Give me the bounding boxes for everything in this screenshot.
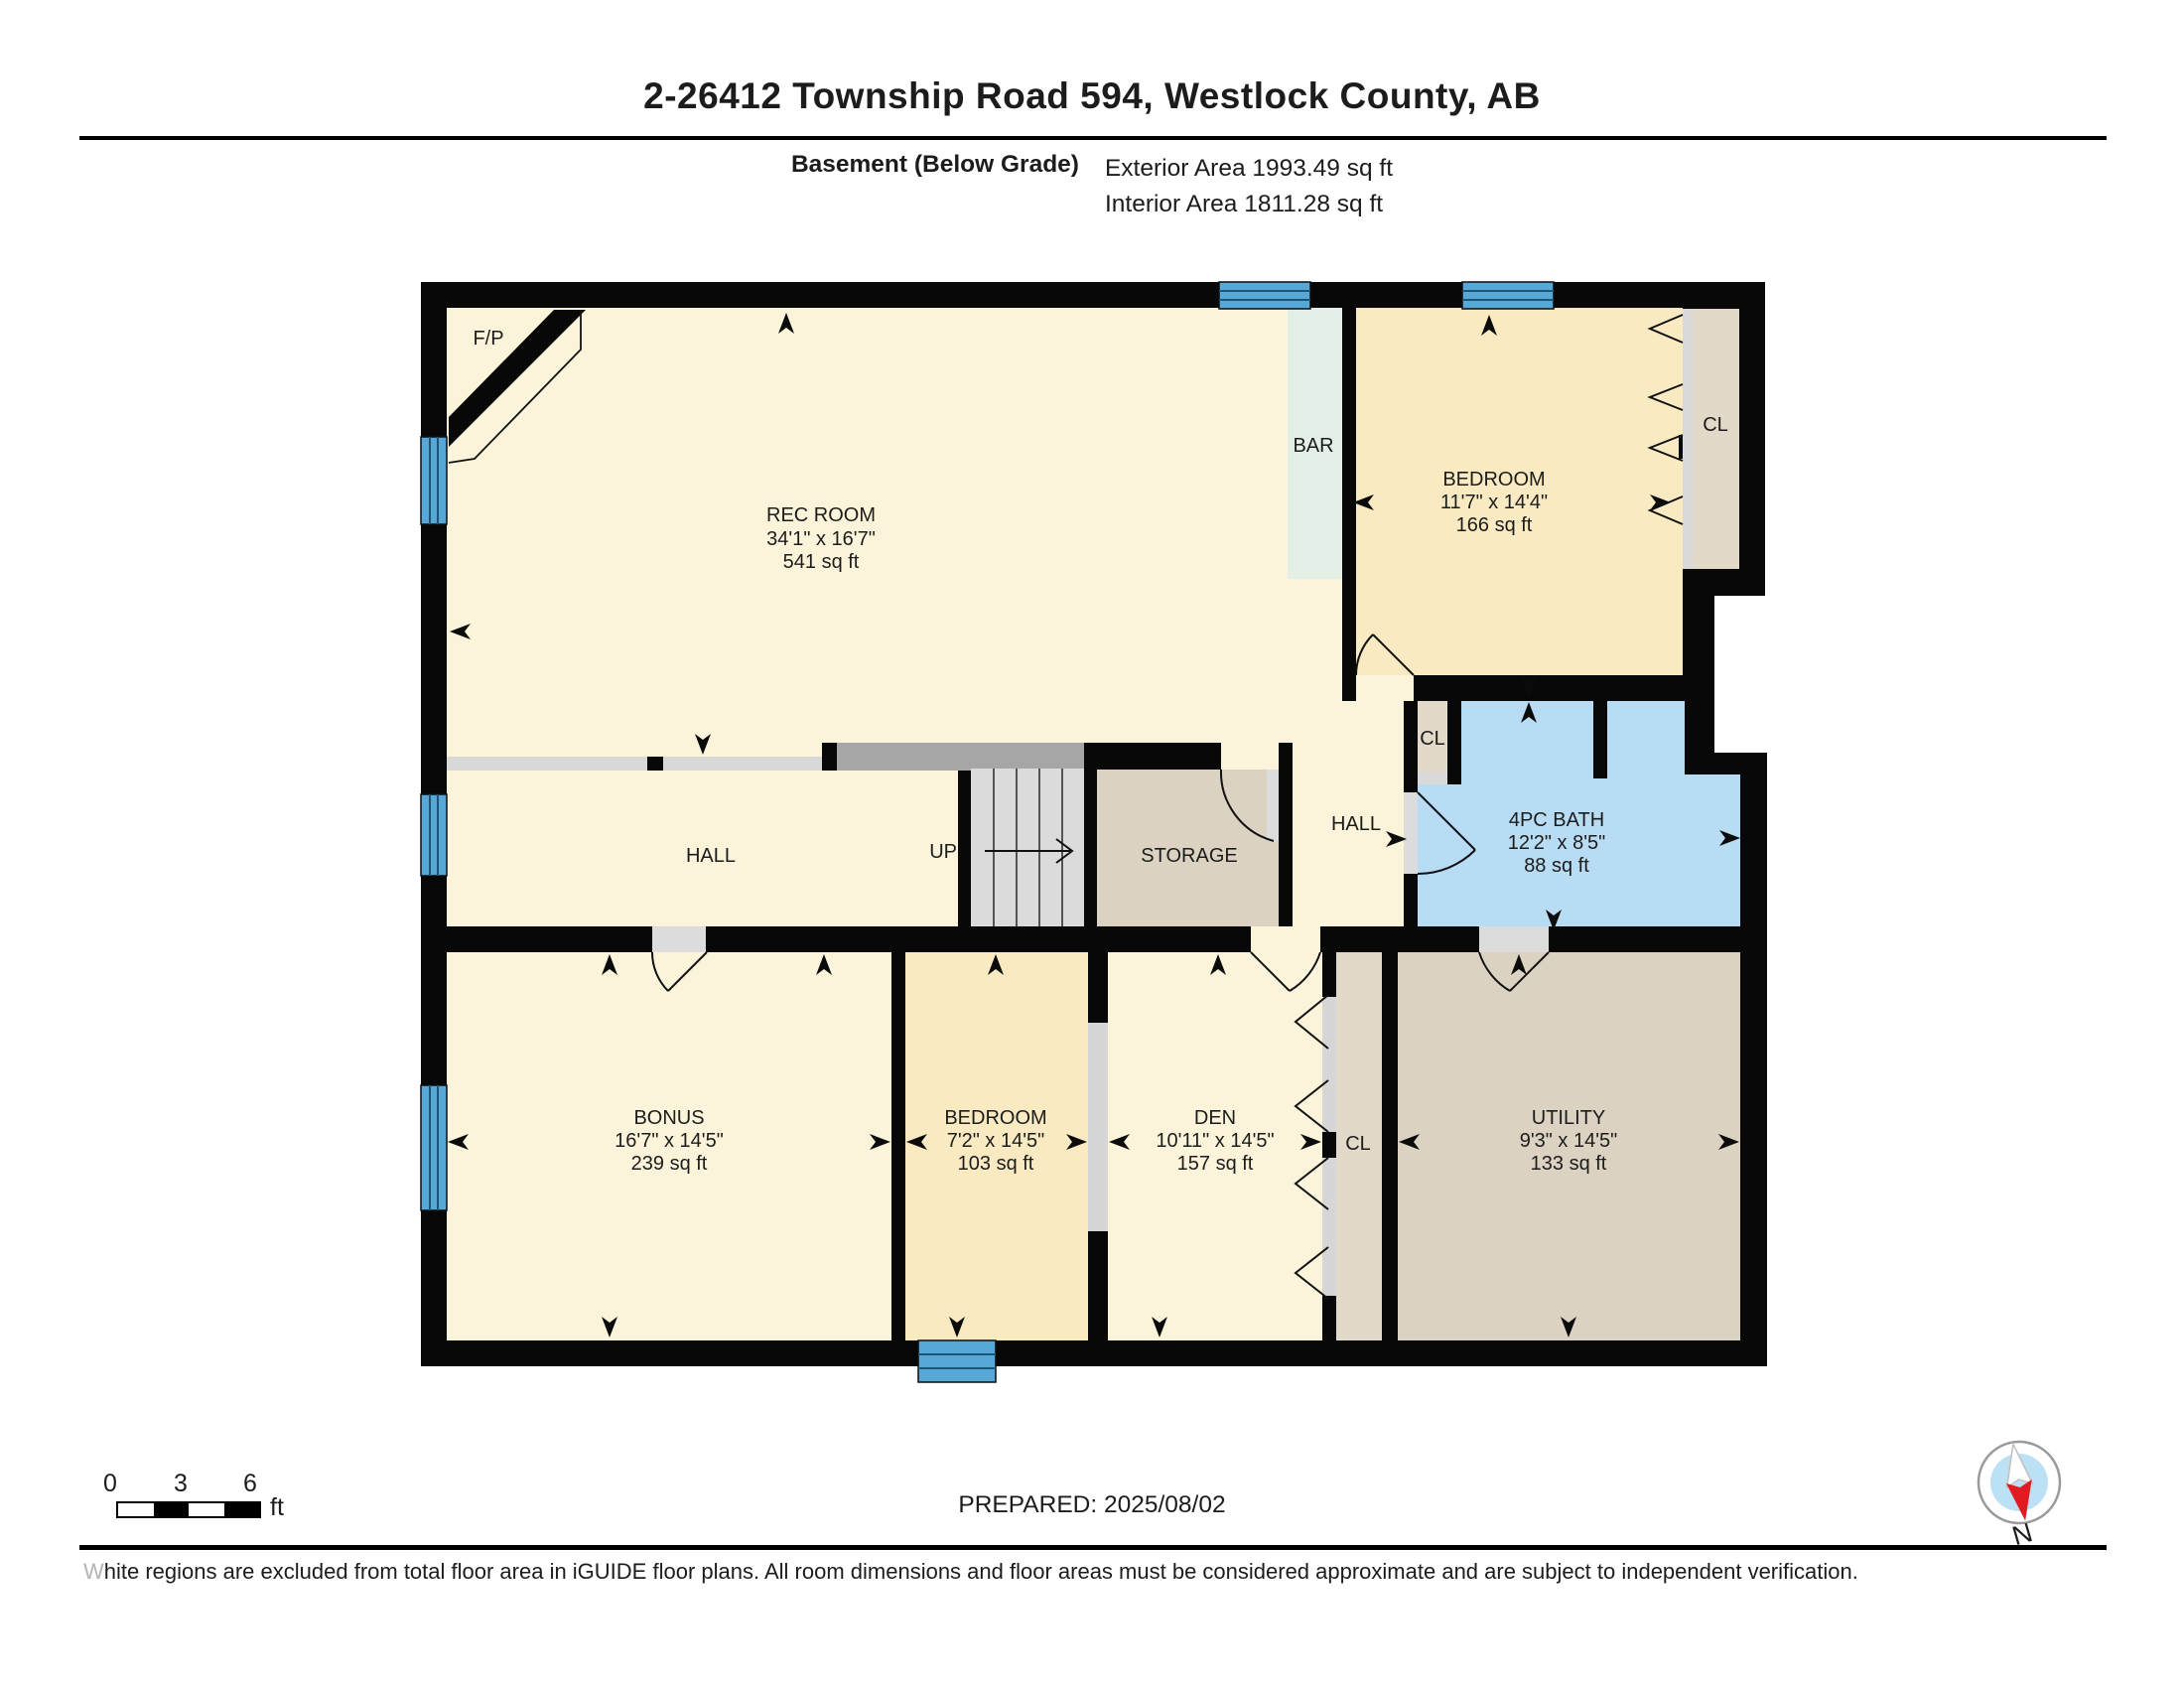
floor-label: Basement (Below Grade) [791, 151, 1079, 179]
up-label: UP [929, 841, 957, 863]
room-label: BEDROOM [944, 1107, 1046, 1129]
window-icon [1219, 282, 1310, 309]
floor-plan: F/P REC ROOM 34'1" x 16'7" 541 sq ft BAR… [417, 278, 1787, 1390]
room-label: REC ROOM [766, 504, 876, 526]
prepared-date: PREPARED: 2025/08/02 [0, 1491, 2184, 1519]
closet-label: CL [1703, 414, 1728, 436]
window-icon [421, 1085, 447, 1210]
fireplace-label: F/P [473, 328, 503, 350]
compass-icon: N [1974, 1438, 2067, 1553]
closet-label: CL [1420, 728, 1445, 750]
closet-track-hall [1418, 772, 1447, 784]
svg-text:133 sq ft: 133 sq ft [1531, 1153, 1607, 1175]
window-icon [918, 1340, 996, 1382]
room-label: BEDROOM [1442, 469, 1545, 491]
hall2-label: HALL [1331, 813, 1381, 835]
page-title: 2-26412 Township Road 594, Westlock Coun… [0, 75, 2184, 117]
svg-text:12'2" x 8'5": 12'2" x 8'5" [1508, 832, 1606, 854]
svg-text:10'11" x 14'5": 10'11" x 14'5" [1156, 1130, 1274, 1152]
closet-label: CL [1345, 1133, 1371, 1155]
footer-divider [79, 1545, 2107, 1550]
closet-track-bedroom [1683, 309, 1693, 569]
room-label: DEN [1194, 1107, 1236, 1129]
svg-text:34'1" x 16'7": 34'1" x 16'7" [766, 528, 876, 550]
svg-text:157 sq ft: 157 sq ft [1177, 1153, 1254, 1175]
svg-text:239 sq ft: 239 sq ft [631, 1153, 708, 1175]
svg-text:16'7" x 14'5": 16'7" x 14'5" [614, 1130, 724, 1152]
svg-text:541 sq ft: 541 sq ft [783, 551, 860, 573]
hall-label: HALL [686, 845, 736, 867]
stair-landing [837, 743, 1084, 771]
floor-summary: Basement (Below Grade) Exterior Area 199… [0, 151, 2184, 222]
area-lines: Exterior Area 1993.49 sq ft Interior Are… [1105, 151, 1393, 222]
room-label: UTILITY [1532, 1107, 1605, 1129]
disclaimer-text: White regions are excluded from total fl… [83, 1559, 1858, 1585]
room-closet-bedroom [1693, 309, 1739, 569]
room-rec-room [447, 308, 1342, 743]
interior-area: Interior Area 1811.28 sq ft [1105, 187, 1393, 222]
svg-text:11'7" x 14'4": 11'7" x 14'4" [1440, 492, 1548, 513]
svg-text:88 sq ft: 88 sq ft [1524, 855, 1589, 877]
room-label: 4PC BATH [1509, 809, 1604, 831]
svg-text:9'3" x 14'5": 9'3" x 14'5" [1520, 1130, 1618, 1152]
pocket-door [1088, 1023, 1108, 1231]
header-divider [79, 136, 2107, 140]
svg-text:103 sq ft: 103 sq ft [958, 1153, 1034, 1175]
bar-label: BAR [1293, 435, 1333, 457]
exterior-area: Exterior Area 1993.49 sq ft [1105, 151, 1393, 187]
svg-text:166 sq ft: 166 sq ft [1456, 514, 1533, 536]
window-icon [1462, 282, 1554, 309]
window-icon [421, 437, 447, 524]
storage-label: STORAGE [1141, 845, 1237, 867]
room-label: BONUS [633, 1107, 704, 1129]
window-icon [421, 794, 447, 876]
svg-text:7'2" x 14'5": 7'2" x 14'5" [947, 1130, 1045, 1152]
